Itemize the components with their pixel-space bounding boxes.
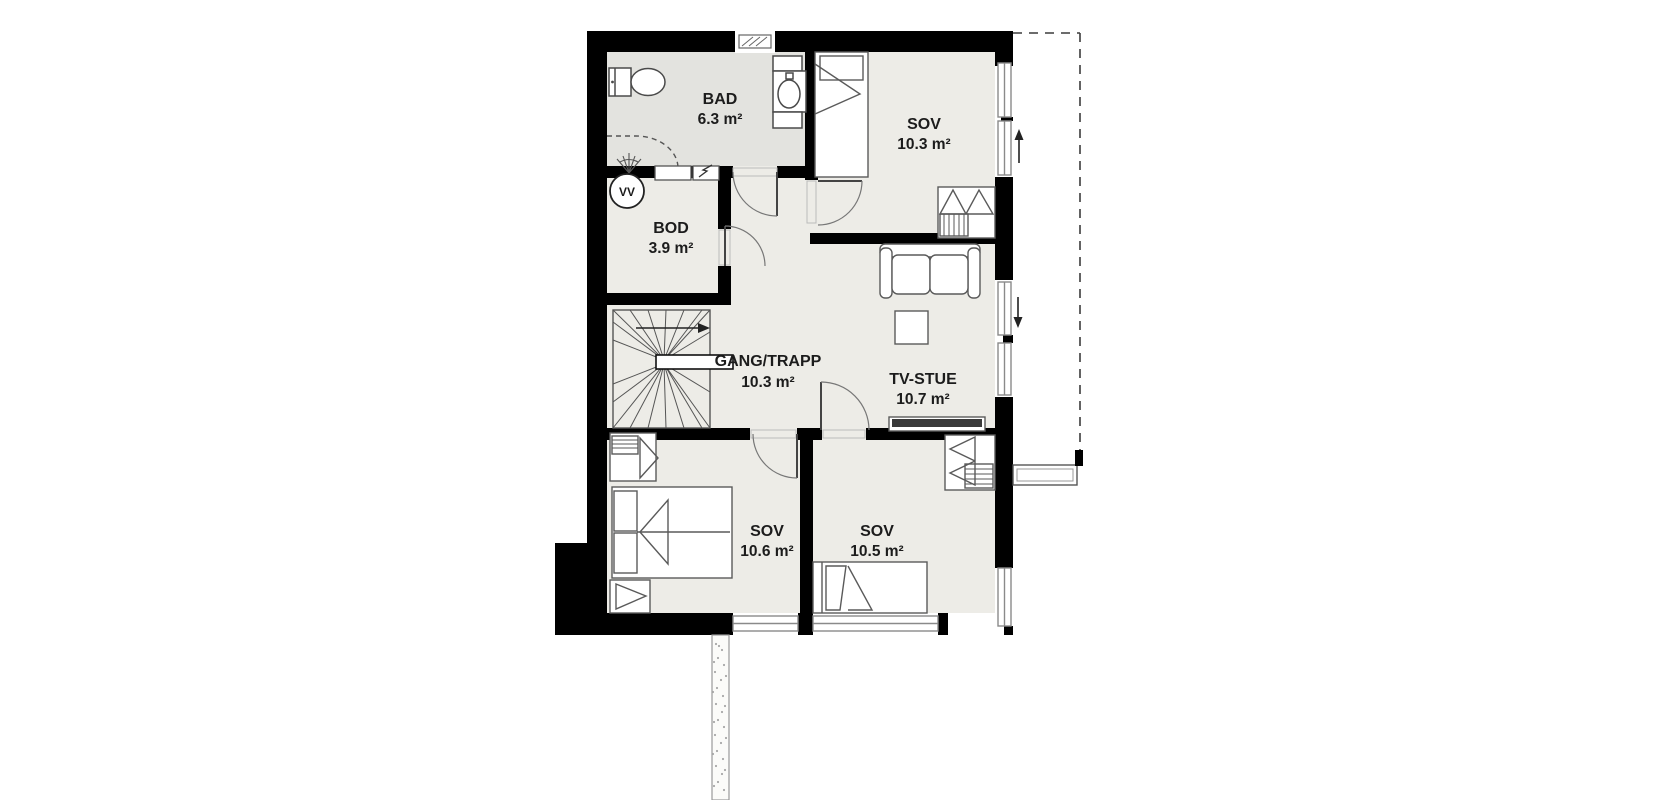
bedside-cabinet bbox=[610, 580, 650, 613]
roof-overhang-outline bbox=[1013, 33, 1083, 485]
wall-right-mid bbox=[995, 177, 1013, 280]
floor-plan-drawing: VV bbox=[0, 0, 1670, 800]
arrow-up-icon bbox=[1015, 129, 1024, 163]
wall-bottom-right-corner bbox=[1004, 626, 1013, 635]
wall-bod-bottom bbox=[607, 293, 731, 305]
window-bottom-1 bbox=[733, 616, 798, 631]
wardrobe-bedroom-right bbox=[945, 435, 995, 490]
svg-text:3.9 m²: 3.9 m² bbox=[649, 240, 694, 257]
wardrobe-bedroom-top bbox=[938, 187, 995, 238]
wash-basin-unit bbox=[773, 56, 806, 128]
wall-bad-bottom-right bbox=[777, 166, 807, 178]
escape-arrows bbox=[1014, 129, 1024, 328]
wall-mid-stub bbox=[797, 428, 822, 440]
svg-text:10.3 m²: 10.3 m² bbox=[897, 136, 950, 153]
wall-sov106-sov105-divider bbox=[800, 440, 813, 613]
ventilation-hatch bbox=[735, 30, 775, 53]
window-divider-tick-mid bbox=[1003, 335, 1013, 343]
svg-text:10.3 m²: 10.3 m² bbox=[741, 374, 794, 391]
svg-text:10.6 m²: 10.6 m² bbox=[740, 543, 793, 560]
svg-text:TV-STUE: TV-STUE bbox=[889, 371, 957, 388]
wall-left bbox=[587, 31, 607, 613]
svg-text:10.7 m²: 10.7 m² bbox=[896, 391, 949, 408]
wall-cabinet bbox=[655, 166, 691, 180]
wall-bottom-left bbox=[555, 613, 733, 635]
arrow-down-icon bbox=[1014, 297, 1023, 328]
side-table bbox=[895, 311, 928, 344]
window-right-4 bbox=[998, 343, 1011, 395]
wall-bottom-right-stub bbox=[938, 613, 948, 635]
lower-wall-stipple-strip bbox=[712, 635, 729, 800]
toilet bbox=[609, 68, 665, 96]
floor-plan-page: VV bbox=[0, 0, 1670, 800]
window-right-1 bbox=[998, 63, 1011, 117]
svg-text:GANG/TRAPP: GANG/TRAPP bbox=[715, 353, 822, 370]
wall-bod-right-upper bbox=[718, 178, 731, 229]
wardrobe-bedroom-left bbox=[610, 433, 658, 481]
svg-text:BOD: BOD bbox=[653, 220, 689, 237]
svg-text:BAD: BAD bbox=[703, 91, 738, 108]
support-post bbox=[1075, 450, 1083, 466]
wall-bottom-stub bbox=[798, 613, 813, 635]
window-right-2 bbox=[998, 121, 1011, 175]
entrance-beam-inner bbox=[1017, 469, 1073, 481]
dashed-outline bbox=[1013, 33, 1080, 451]
window-right-5 bbox=[998, 568, 1011, 626]
svg-text:SOV: SOV bbox=[860, 523, 894, 540]
wall-right-lower bbox=[995, 397, 1013, 568]
window-bottom-2 bbox=[813, 616, 938, 631]
single-bed-top bbox=[815, 52, 868, 177]
svg-text:6.3 m²: 6.3 m² bbox=[698, 111, 743, 128]
double-bed bbox=[612, 487, 732, 578]
svg-text:SOV: SOV bbox=[907, 116, 941, 133]
wall-top bbox=[587, 31, 1013, 52]
svg-text:SOV: SOV bbox=[750, 523, 784, 540]
window-right-3 bbox=[998, 282, 1011, 335]
sofa bbox=[880, 244, 980, 298]
water-heater-label: VV bbox=[619, 185, 635, 199]
tv-bench bbox=[889, 417, 985, 431]
single-bed-bottom bbox=[813, 562, 927, 613]
svg-text:10.5 m²: 10.5 m² bbox=[850, 543, 903, 560]
